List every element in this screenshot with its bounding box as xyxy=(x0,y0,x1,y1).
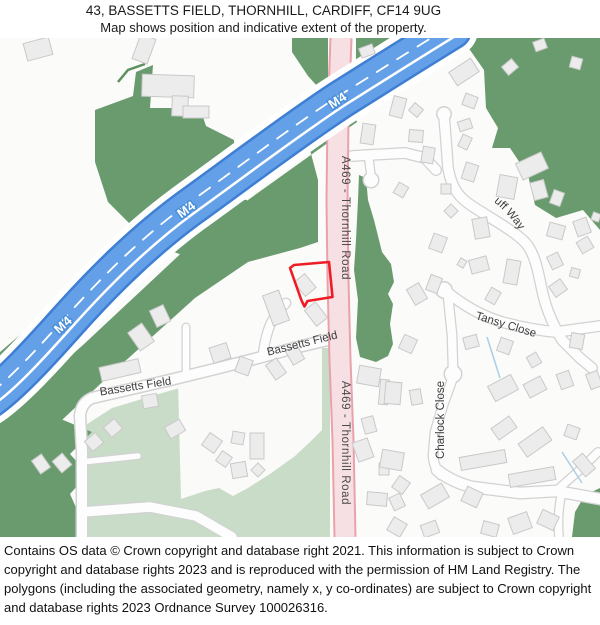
footer: Contains OS data © Crown copyright and d… xyxy=(0,537,600,625)
header: 43, BASSETTS FIELD, THORNHILL, CARDIFF, … xyxy=(0,0,600,38)
map-canvas: M4 M4 M4 A469 - Thornhill Road A469 - Th… xyxy=(0,38,600,537)
page-title: 43, BASSETTS FIELD, THORNHILL, CARDIFF, … xyxy=(0,3,527,18)
a469-label: A469 - Thornhill Road xyxy=(339,156,351,280)
page-subtitle: Map shows position and indicative extent… xyxy=(0,20,527,35)
charlock-close-label: Charlock Close xyxy=(435,381,447,459)
map-viewport: M4 M4 M4 A469 - Thornhill Road A469 - Th… xyxy=(0,38,600,537)
copyright-text: Contains OS data © Crown copyright and d… xyxy=(0,537,600,617)
tansy-close-label: Tansy Close xyxy=(474,310,537,340)
a469-label: A469 - Thornhill Road xyxy=(339,381,351,505)
